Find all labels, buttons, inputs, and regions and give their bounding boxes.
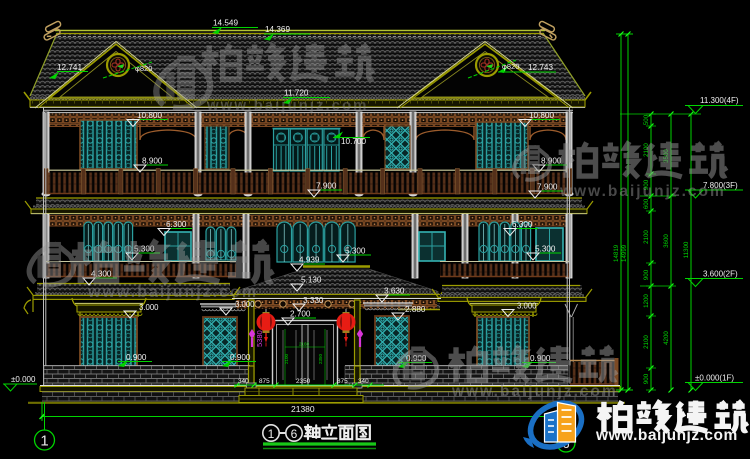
svg-text:12.741: 12.741	[57, 63, 82, 72]
svg-text:0.900: 0.900	[230, 353, 251, 362]
svg-text:900: 900	[643, 269, 650, 280]
svg-text:2350: 2350	[318, 353, 323, 364]
svg-text:6.300: 6.300	[512, 220, 533, 229]
svg-text:3600: 3600	[663, 234, 670, 248]
svg-text:14.549: 14.549	[213, 19, 238, 28]
svg-text:340: 340	[358, 378, 369, 385]
svg-text:4200: 4200	[663, 331, 670, 345]
svg-text:340: 340	[238, 378, 249, 385]
svg-text:900: 900	[643, 373, 650, 384]
svg-text:7.900: 7.900	[537, 183, 558, 192]
svg-text:2100: 2100	[284, 353, 289, 364]
svg-text:±0.000(1F): ±0.000(1F)	[695, 374, 734, 383]
svg-text:3.000: 3.000	[139, 303, 159, 312]
svg-text:7.900: 7.900	[316, 182, 337, 191]
svg-text:±0.000: ±0.000	[11, 375, 36, 384]
svg-text:10.700: 10.700	[341, 137, 366, 146]
svg-text:1: 1	[40, 433, 48, 450]
svg-text:www.baijunjz.com: www.baijunjz.com	[206, 97, 368, 114]
svg-text:2100: 2100	[643, 230, 650, 244]
svg-text:φ820: φ820	[135, 64, 152, 73]
svg-text:1: 1	[268, 427, 275, 441]
svg-text:8.900: 8.900	[142, 157, 163, 166]
svg-text:3.600(2F): 3.600(2F)	[703, 270, 738, 279]
svg-text:0.900: 0.900	[126, 353, 147, 362]
svg-text:11.300(4F): 11.300(4F)	[700, 96, 739, 105]
svg-text:2350: 2350	[296, 378, 311, 385]
svg-text:www.baijunjz.com: www.baijunjz.com	[559, 183, 726, 200]
svg-text:500: 500	[643, 114, 650, 125]
svg-text:3.630: 3.630	[384, 287, 405, 296]
svg-text:3.000: 3.000	[517, 302, 537, 311]
svg-text:5.300: 5.300	[345, 247, 366, 256]
svg-text:www.baijunjz.com: www.baijunjz.com	[595, 427, 738, 444]
svg-text:875: 875	[337, 378, 348, 385]
svg-text:www.baijunjz.com: www.baijunjz.com	[451, 383, 618, 400]
svg-text:2.700: 2.700	[290, 310, 311, 319]
svg-text:12.743: 12.743	[528, 63, 553, 72]
svg-text:3.000: 3.000	[235, 300, 255, 309]
svg-text:1200: 1200	[643, 294, 650, 308]
svg-text:6.300: 6.300	[166, 220, 187, 229]
svg-text:2.880: 2.880	[405, 305, 426, 314]
svg-text:10.800: 10.800	[529, 111, 554, 120]
svg-text:2100: 2100	[643, 335, 650, 349]
svg-text:11300: 11300	[683, 241, 690, 258]
svg-text:14819: 14819	[613, 244, 620, 262]
svg-text:6: 6	[291, 427, 298, 441]
svg-text:φ820: φ820	[502, 62, 519, 71]
svg-text:5.130: 5.130	[301, 276, 322, 285]
svg-text:www.baijunjz.com: www.baijunjz.com	[87, 284, 258, 301]
svg-text:5.300: 5.300	[535, 245, 556, 254]
svg-text:10.800: 10.800	[137, 111, 162, 120]
svg-text:2160: 2160	[299, 342, 310, 347]
svg-text:21380: 21380	[291, 404, 315, 414]
svg-text:875: 875	[259, 378, 270, 385]
svg-text:14.369: 14.369	[265, 25, 290, 34]
svg-text:4.939: 4.939	[299, 256, 320, 265]
svg-text:14999: 14999	[621, 244, 628, 262]
svg-text:3.330: 3.330	[303, 296, 324, 305]
